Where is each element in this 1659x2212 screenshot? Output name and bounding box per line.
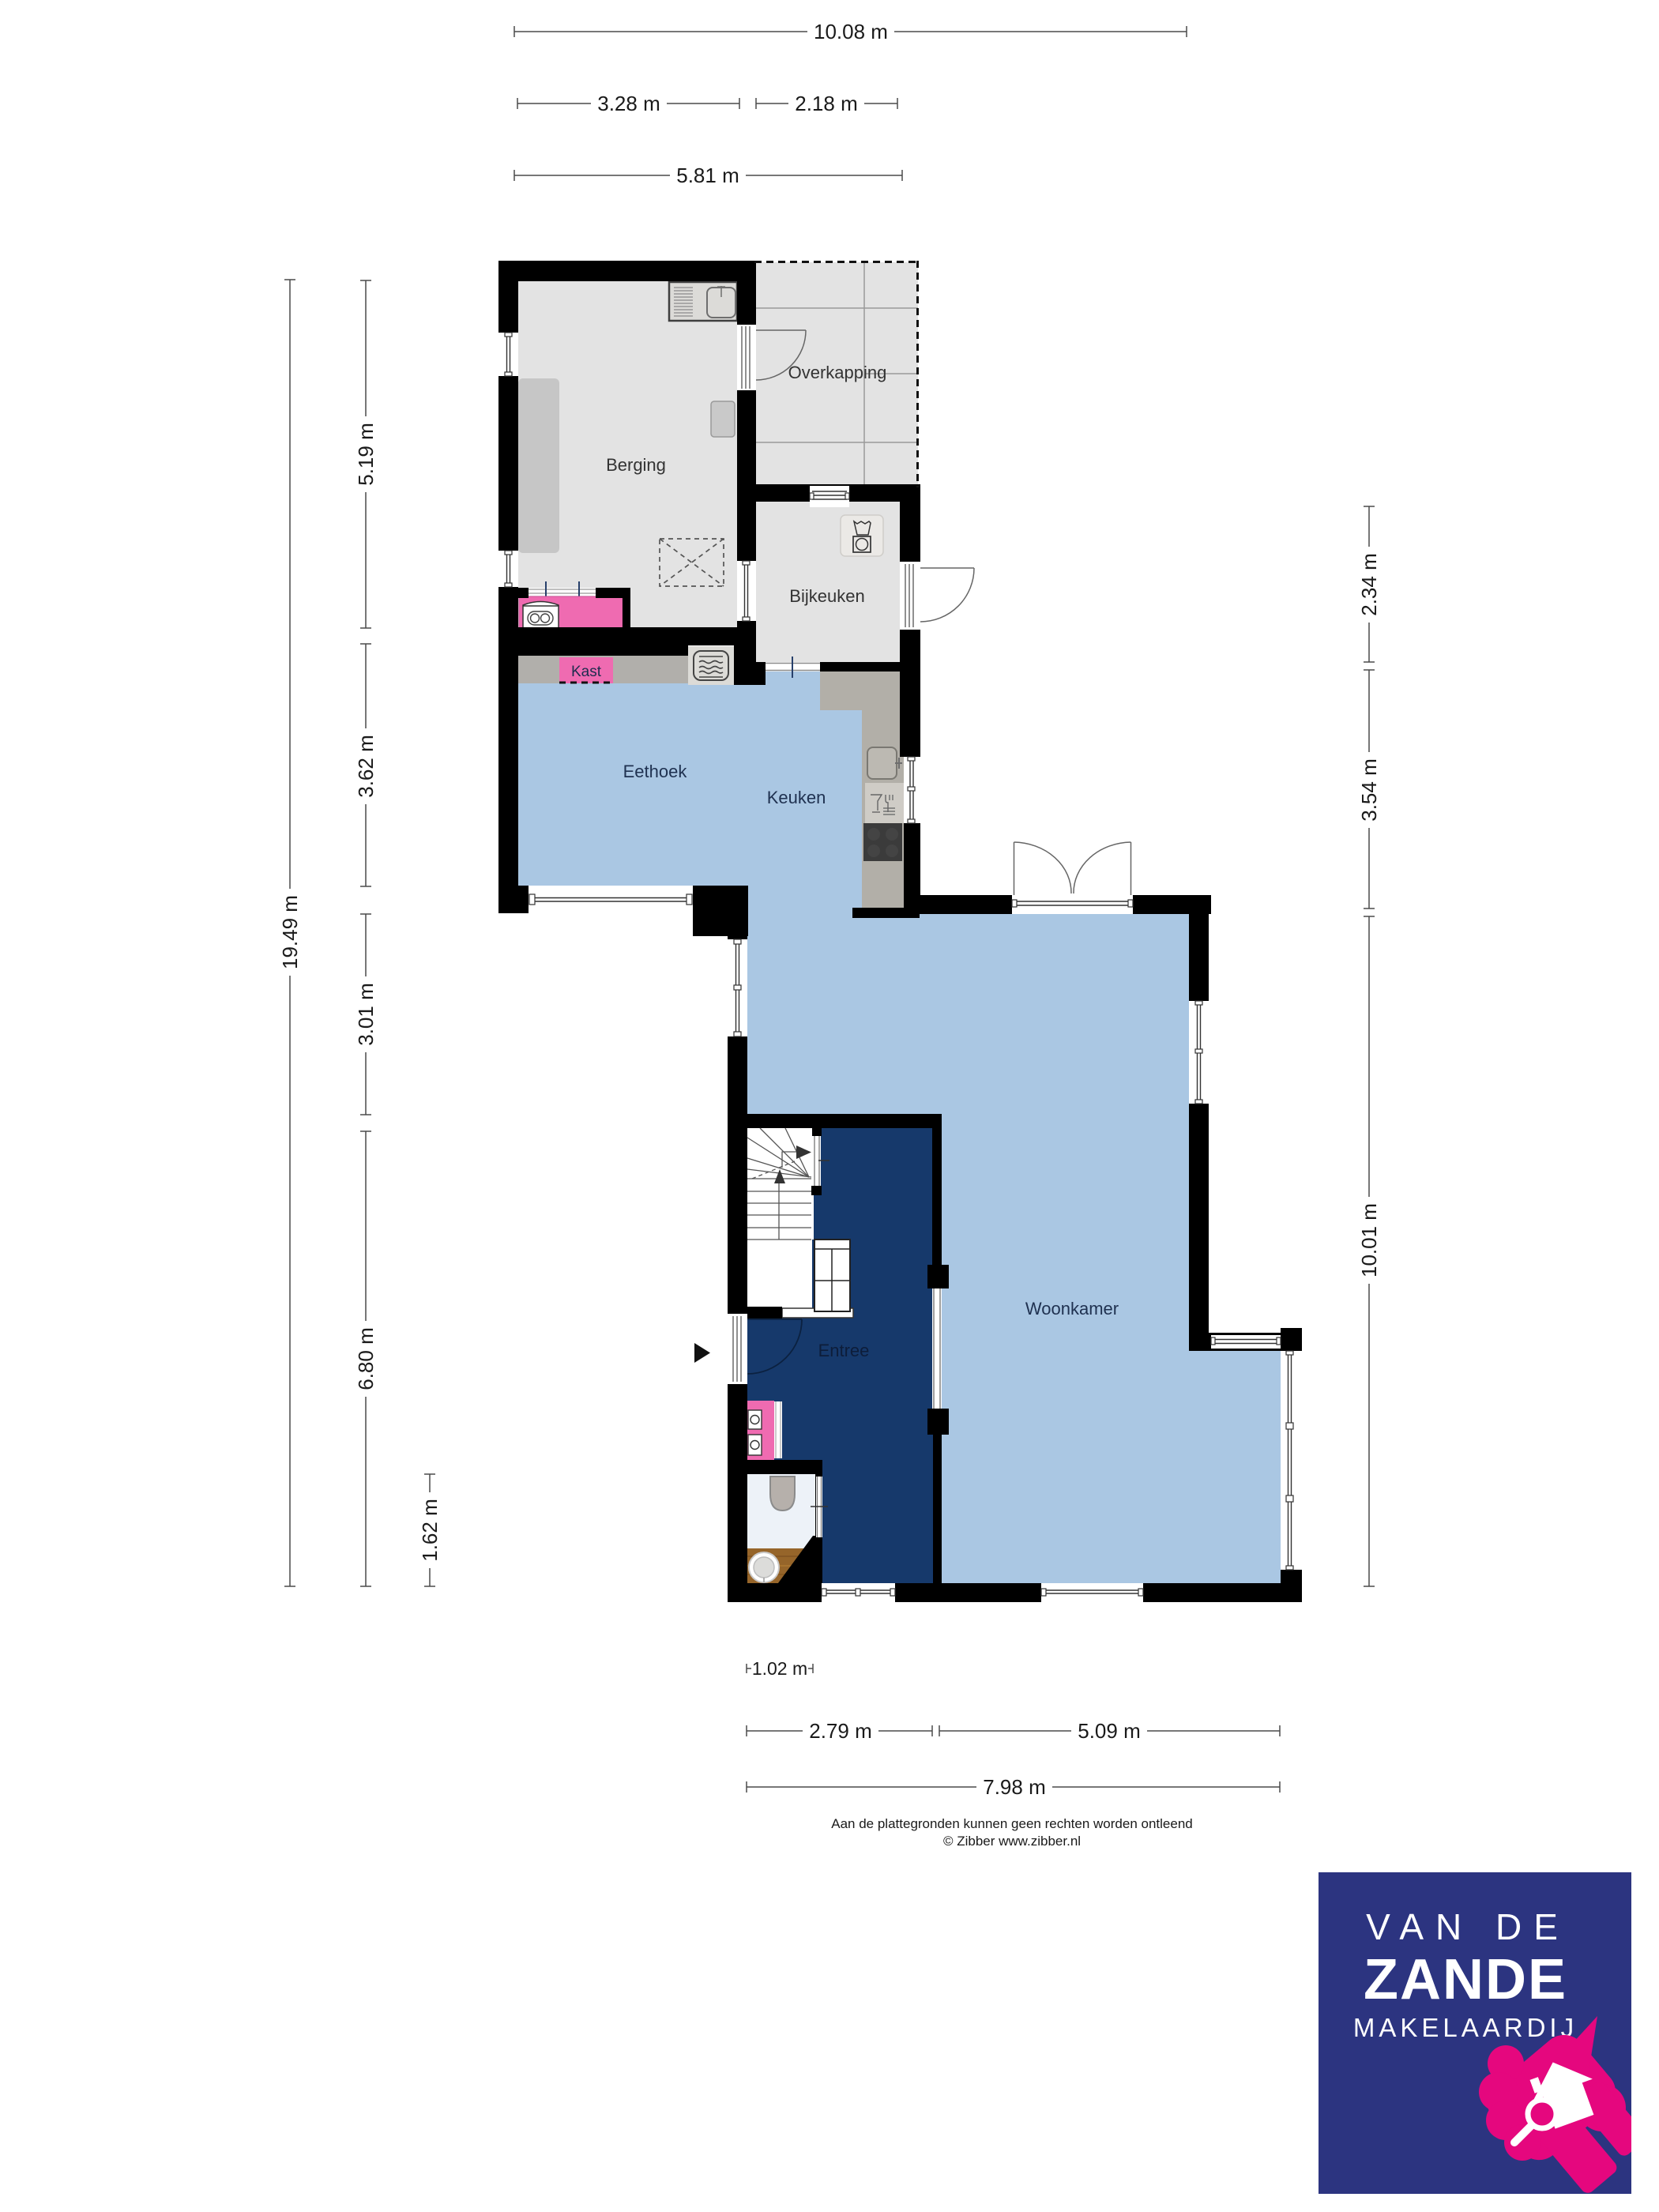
svg-text:Berging: Berging [606,455,666,475]
svg-text:2.34 m: 2.34 m [1357,553,1381,616]
svg-text:VAN DE: VAN DE [1366,1906,1570,1947]
svg-text:6.80 m: 6.80 m [354,1327,378,1390]
svg-text:ZANDE: ZANDE [1364,1948,1567,2011]
svg-text:2.18 m: 2.18 m [795,92,858,115]
svg-text:3.62 m: 3.62 m [354,735,378,798]
svg-text:5.19 m: 5.19 m [354,423,378,486]
svg-text:1.62 m: 1.62 m [418,1499,442,1562]
svg-text:10.01 m: 10.01 m [1357,1203,1381,1277]
svg-text:3.54 m: 3.54 m [1357,758,1381,822]
svg-text:3.01 m: 3.01 m [354,983,378,1046]
svg-text:Woonkamer: Woonkamer [1025,1299,1119,1319]
svg-text:Aan de plattegronden kunnen ge: Aan de plattegronden kunnen geen rechten… [831,1816,1192,1831]
svg-text:10.08 m: 10.08 m [814,20,888,43]
svg-text:Bijkeuken: Bijkeuken [789,586,864,606]
svg-text:© Zibber www.zibber.nl: © Zibber www.zibber.nl [943,1834,1081,1849]
svg-text:Kast: Kast [571,664,602,680]
svg-text:2.79 m: 2.79 m [809,1719,872,1743]
svg-text:Overkapping: Overkapping [788,363,887,382]
svg-text:3.28 m: 3.28 m [597,92,660,115]
svg-text:Keuken: Keuken [767,788,826,807]
svg-text:1.02 m: 1.02 m [752,1658,807,1679]
svg-text:MAKELAARDIJ: MAKELAARDIJ [1353,2013,1578,2042]
svg-text:19.49 m: 19.49 m [278,895,302,969]
svg-text:5.09 m: 5.09 m [1078,1719,1141,1743]
svg-text:7.98 m: 7.98 m [983,1775,1046,1799]
svg-text:Eethoek: Eethoek [623,762,688,781]
svg-text:Entree: Entree [818,1341,870,1360]
svg-text:5.81 m: 5.81 m [676,164,739,187]
